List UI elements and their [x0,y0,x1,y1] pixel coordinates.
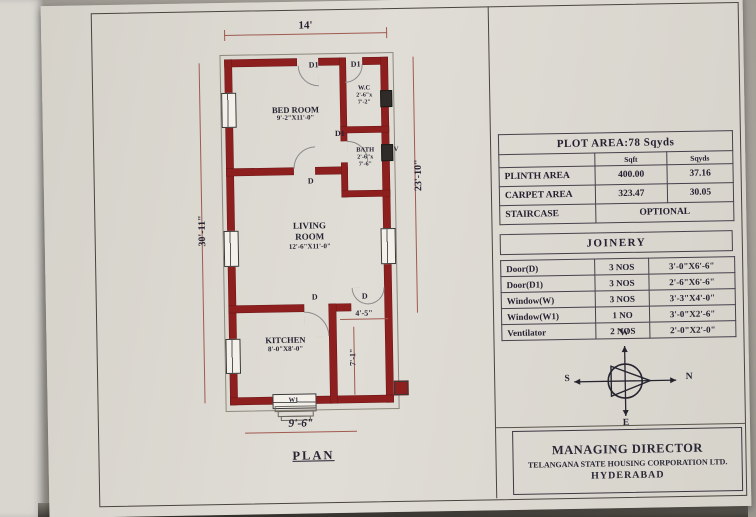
joinery-size: 2'-6"X6'-6" [649,273,735,290]
wall-kitchen-living-left [229,305,304,313]
room-kitchen-size: 8'-0"X8'-0" [268,345,304,354]
compass-top-letter: W [615,328,633,339]
staircase-value: OPTIONAL [596,202,734,223]
joinery-qty: 3 NOS [595,274,649,291]
joinery-size: 2'-0"X2'-0" [650,321,736,338]
title-block: MANAGING DIRECTOR TELANGANA STATE HOUSIN… [512,427,743,495]
table-row: STAIRCASE OPTIONAL [500,202,734,225]
room-wc: W.C 2'-6"x 7'-2" [343,84,385,107]
staircase-label: STAIRCASE [500,204,596,225]
background-wall-strip [0,0,44,517]
room-kitchen: KITCHEN 8'-0"X8'-0" [239,334,331,354]
window-living-left [224,231,240,267]
photo-of-floor-plan-sheet: W1 14' 30'-11" 23'-10" 9'-6" 4'-5" 7'-1"… [0,0,756,517]
wall-bottom-left-segment [230,397,272,405]
drawing-sheet: W1 14' 30'-11" 23'-10" 9'-6" 4'-5" 7'-1"… [41,0,752,517]
carpet-area-label: CARPET AREA [499,185,595,206]
room-bedroom: BED ROOM 9'-2"X11'-0" [247,104,343,124]
joinery-size: 3'-0"X6'-6" [649,257,735,274]
window-bedroom [221,93,237,128]
mark-d-bedroom: D [302,177,320,186]
dim-label-right: 23'-10" [412,145,424,205]
mark-d-kitchen: D [306,293,324,302]
plinth-area-label: PLINTH AREA [499,166,595,187]
window-w1-mark: W1 [272,396,314,404]
carpet-area-sqyds: 30.05 [667,183,733,203]
wall-bath-bottom [342,190,390,197]
room-living-name: LIVING ROOM [279,220,339,243]
title-block-org: TELANGANA STATE HOUSING CORPORATION LTD. [528,457,728,469]
joinery-item: Window(W1) [501,307,595,325]
mark-v-bath: V [390,146,402,153]
room-living-size: 12'-6"X11'-0" [289,242,331,251]
joinery-qty: 3 NOS [595,290,649,307]
room-bath-size2: 7'-6" [359,161,372,168]
compass-left-letter: S [559,374,575,385]
joinery-qty: 3 NOS [595,258,649,275]
title-block-city: HYDERABAD [591,469,665,481]
joinery-item: Ventilator [502,323,596,341]
window-living-right [381,228,397,264]
plan-caption: PLAN [248,447,378,463]
room-wc-size2: 7'-2" [358,99,371,106]
wall-top-left-segment [225,59,297,67]
joinery-size: 3'-3"X4'-0" [649,289,735,306]
room-living: LIVING ROOM 12'-6"X11'-0" [257,220,362,252]
joinery-item: Door(D1) [501,275,595,293]
compass-bottom-letter: E [617,418,635,429]
room-wc-name: W.C [358,84,370,92]
joinery-item: Door(D) [501,259,595,277]
dim-label-left: 30'-11" [196,201,208,261]
mark-d1-bath: D1 [330,130,350,139]
compass-rose-icon [570,341,681,421]
dim-label-sitout-h: 7'-1" [349,334,359,380]
wall-bottom-right-segment [314,395,393,403]
joinery-size: 3'-0"X2'-6" [649,305,735,322]
joinery-qty: 1 NO [595,306,649,323]
joinery-item: Window(W) [501,291,595,309]
plinth-area-sqft: 400.00 [595,165,667,185]
mark-d1-entrance: D1 [304,61,324,70]
compass-right-letter: N [681,372,697,383]
room-bath: BATH 2'-6"x 7'-6" [344,146,386,169]
carpet-area-sqft: 323.47 [595,184,667,204]
room-bedroom-size: 9'-2"X11'-0" [277,115,315,124]
plot-area-header-sqft: Sqft [595,152,667,166]
plot-area-table: PLOT AREA:78 Sqyds Sqft Sqyds PLINTH ARE… [498,130,735,225]
portico-column [394,381,408,395]
dim-label-bottom: 9'-6" [245,417,357,432]
joinery-title: JOINERY [500,230,733,255]
plinth-area-sqyds: 37.16 [667,164,733,184]
title-block-role: MANAGING DIRECTOR [552,440,703,458]
wall-bedroom-living-left [226,168,293,176]
room-kitchen-name: KITCHEN [265,335,305,346]
plot-area-header-sqyds: Sqyds [667,151,733,165]
dim-label-sitout-w: 4'-5" [334,309,394,319]
mark-d1-wc: D1 [347,61,365,70]
mark-d-east: D [356,292,374,301]
